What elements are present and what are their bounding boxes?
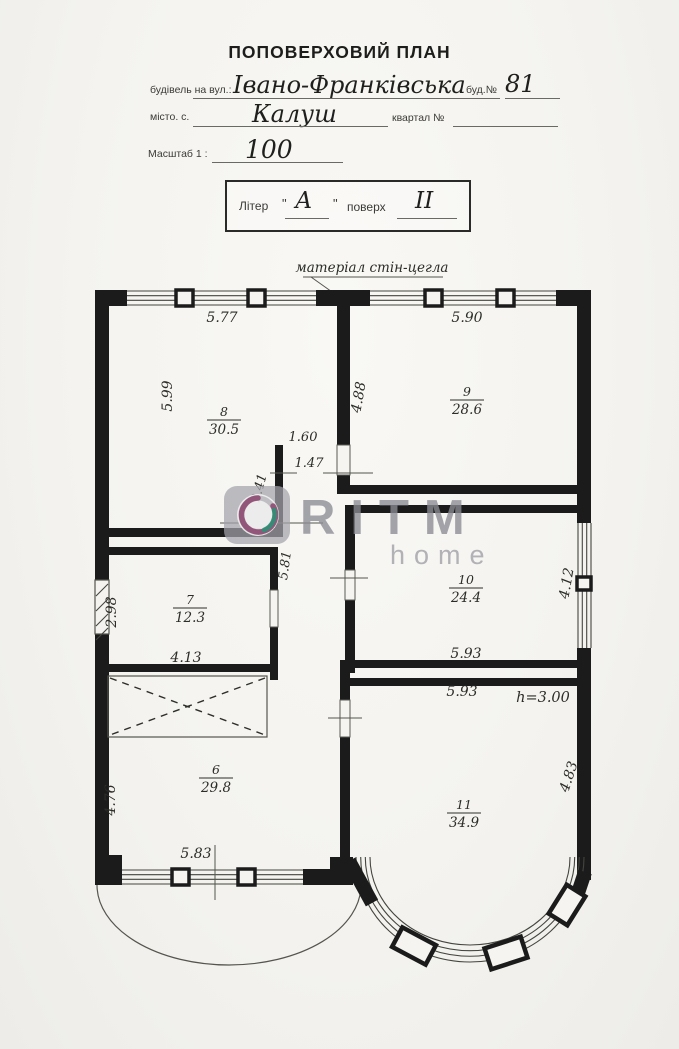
dim-room9-top: 5.90	[451, 310, 482, 326]
terrace-arc	[97, 885, 361, 965]
wall-segment	[316, 290, 370, 306]
window-mullion	[172, 869, 189, 885]
wall-segment	[95, 547, 278, 555]
room-label-10: 10 24.4	[449, 572, 483, 606]
window-mullion	[577, 577, 591, 590]
window-mullion	[176, 290, 193, 306]
dim-room6-bottom: 5.83	[180, 846, 211, 862]
window-mullion	[497, 290, 514, 306]
wall-segment	[340, 660, 350, 700]
wall-segment	[95, 290, 109, 580]
dim-passage-upper: 1.60	[289, 430, 318, 445]
dim-room6-left: 4.76	[103, 784, 119, 816]
svg-text:12.3: 12.3	[175, 610, 205, 626]
material-note: матеріал стін-цегла	[296, 260, 449, 276]
room-label-11: 11 34.9	[447, 797, 481, 831]
svg-text:10: 10	[458, 572, 474, 587]
ceiling-height-note: h=3.00	[516, 690, 570, 706]
room-labels: 6 29.8 7 12.3 8 30.5 9 28.6 10	[173, 384, 484, 831]
dim-corridor-length: 5.81	[276, 550, 295, 581]
dim-room7-bottom: 4.13	[169, 650, 201, 666]
wall-segment	[577, 290, 591, 523]
svg-text:9: 9	[463, 384, 471, 399]
bay-window-curve	[349, 857, 585, 969]
room-label-7: 7 12.3	[173, 592, 207, 626]
svg-text:11: 11	[456, 797, 472, 812]
bay-pier	[549, 885, 586, 925]
wall-segment	[337, 306, 350, 445]
bay-pier	[485, 937, 528, 970]
room-label-9: 9 28.6	[450, 384, 484, 418]
room-label-6: 6 29.8	[199, 762, 233, 796]
dim-room7-left: 2.98	[104, 596, 120, 628]
watermark-sub: home	[390, 540, 494, 571]
window-mullion	[238, 869, 255, 885]
svg-text:24.4: 24.4	[450, 590, 481, 606]
svg-text:29.8: 29.8	[200, 780, 231, 796]
svg-text:34.9: 34.9	[449, 815, 479, 831]
window-mullion	[248, 290, 265, 306]
window-mullion	[425, 290, 442, 306]
dim-room9-left: 4.88	[348, 380, 369, 415]
door-opening	[337, 445, 350, 475]
svg-text:28.6: 28.6	[451, 402, 482, 418]
room-label-8: 8 30.5	[207, 404, 241, 438]
bay-pier	[392, 927, 436, 964]
wall-segment	[340, 737, 350, 857]
door-opening	[270, 590, 278, 627]
wall-segment	[95, 855, 122, 885]
svg-text:30.5: 30.5	[209, 422, 239, 438]
dim-room8-top: 5.77	[206, 310, 237, 326]
dim-room10-bottom: 5.93	[450, 646, 481, 662]
svg-text:6: 6	[212, 762, 220, 777]
dim-passage-lower: 1.47	[295, 456, 325, 471]
door-opening	[345, 570, 355, 600]
dim-room11-top: 5.93	[446, 684, 477, 700]
dim-room8-left: 5.99	[160, 380, 176, 411]
watermark-brand: RITM	[300, 490, 480, 546]
ritm-logo-icon	[224, 486, 290, 544]
floor-void	[108, 676, 267, 737]
wall-segment	[270, 627, 278, 680]
dim-room10-right: 4.12	[556, 566, 577, 601]
svg-text:8: 8	[220, 404, 228, 419]
svg-text:7: 7	[186, 592, 194, 607]
scanned-floor-plan-page: ПОПОВЕРХОВИЙ ПЛАН будівель на вул.: Іван…	[0, 0, 679, 1049]
